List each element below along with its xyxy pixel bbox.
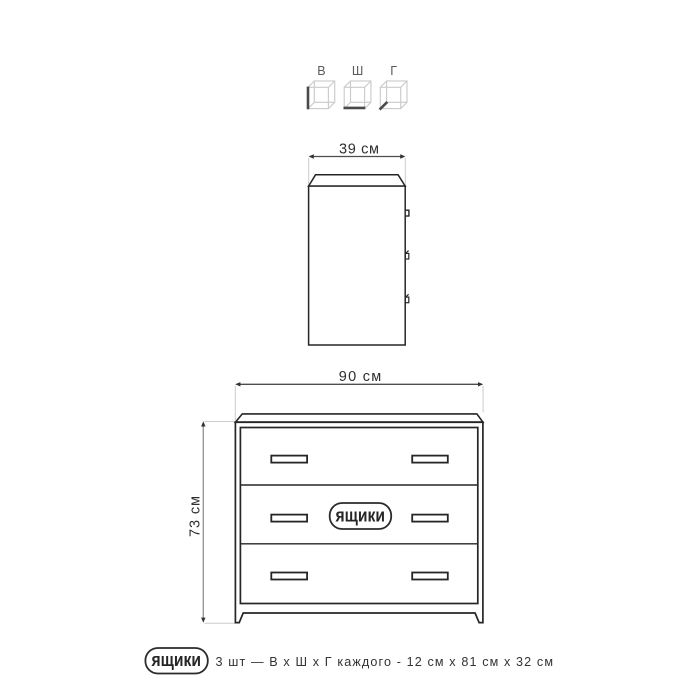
svg-text:Ш: Ш (352, 64, 363, 78)
svg-text:В: В (317, 64, 325, 78)
svg-text:90 см: 90 см (339, 369, 382, 385)
svg-text:39 см: 39 см (339, 142, 379, 158)
svg-text:3 шт — В х Ш х Г каждого - 12: 3 шт — В х Ш х Г каждого - 12 см х 81 см… (216, 655, 554, 669)
svg-text:ящики: ящики (151, 649, 201, 670)
svg-text:Г: Г (390, 64, 397, 78)
svg-text:ящики: ящики (335, 504, 385, 525)
svg-text:73 см: 73 см (188, 496, 204, 537)
